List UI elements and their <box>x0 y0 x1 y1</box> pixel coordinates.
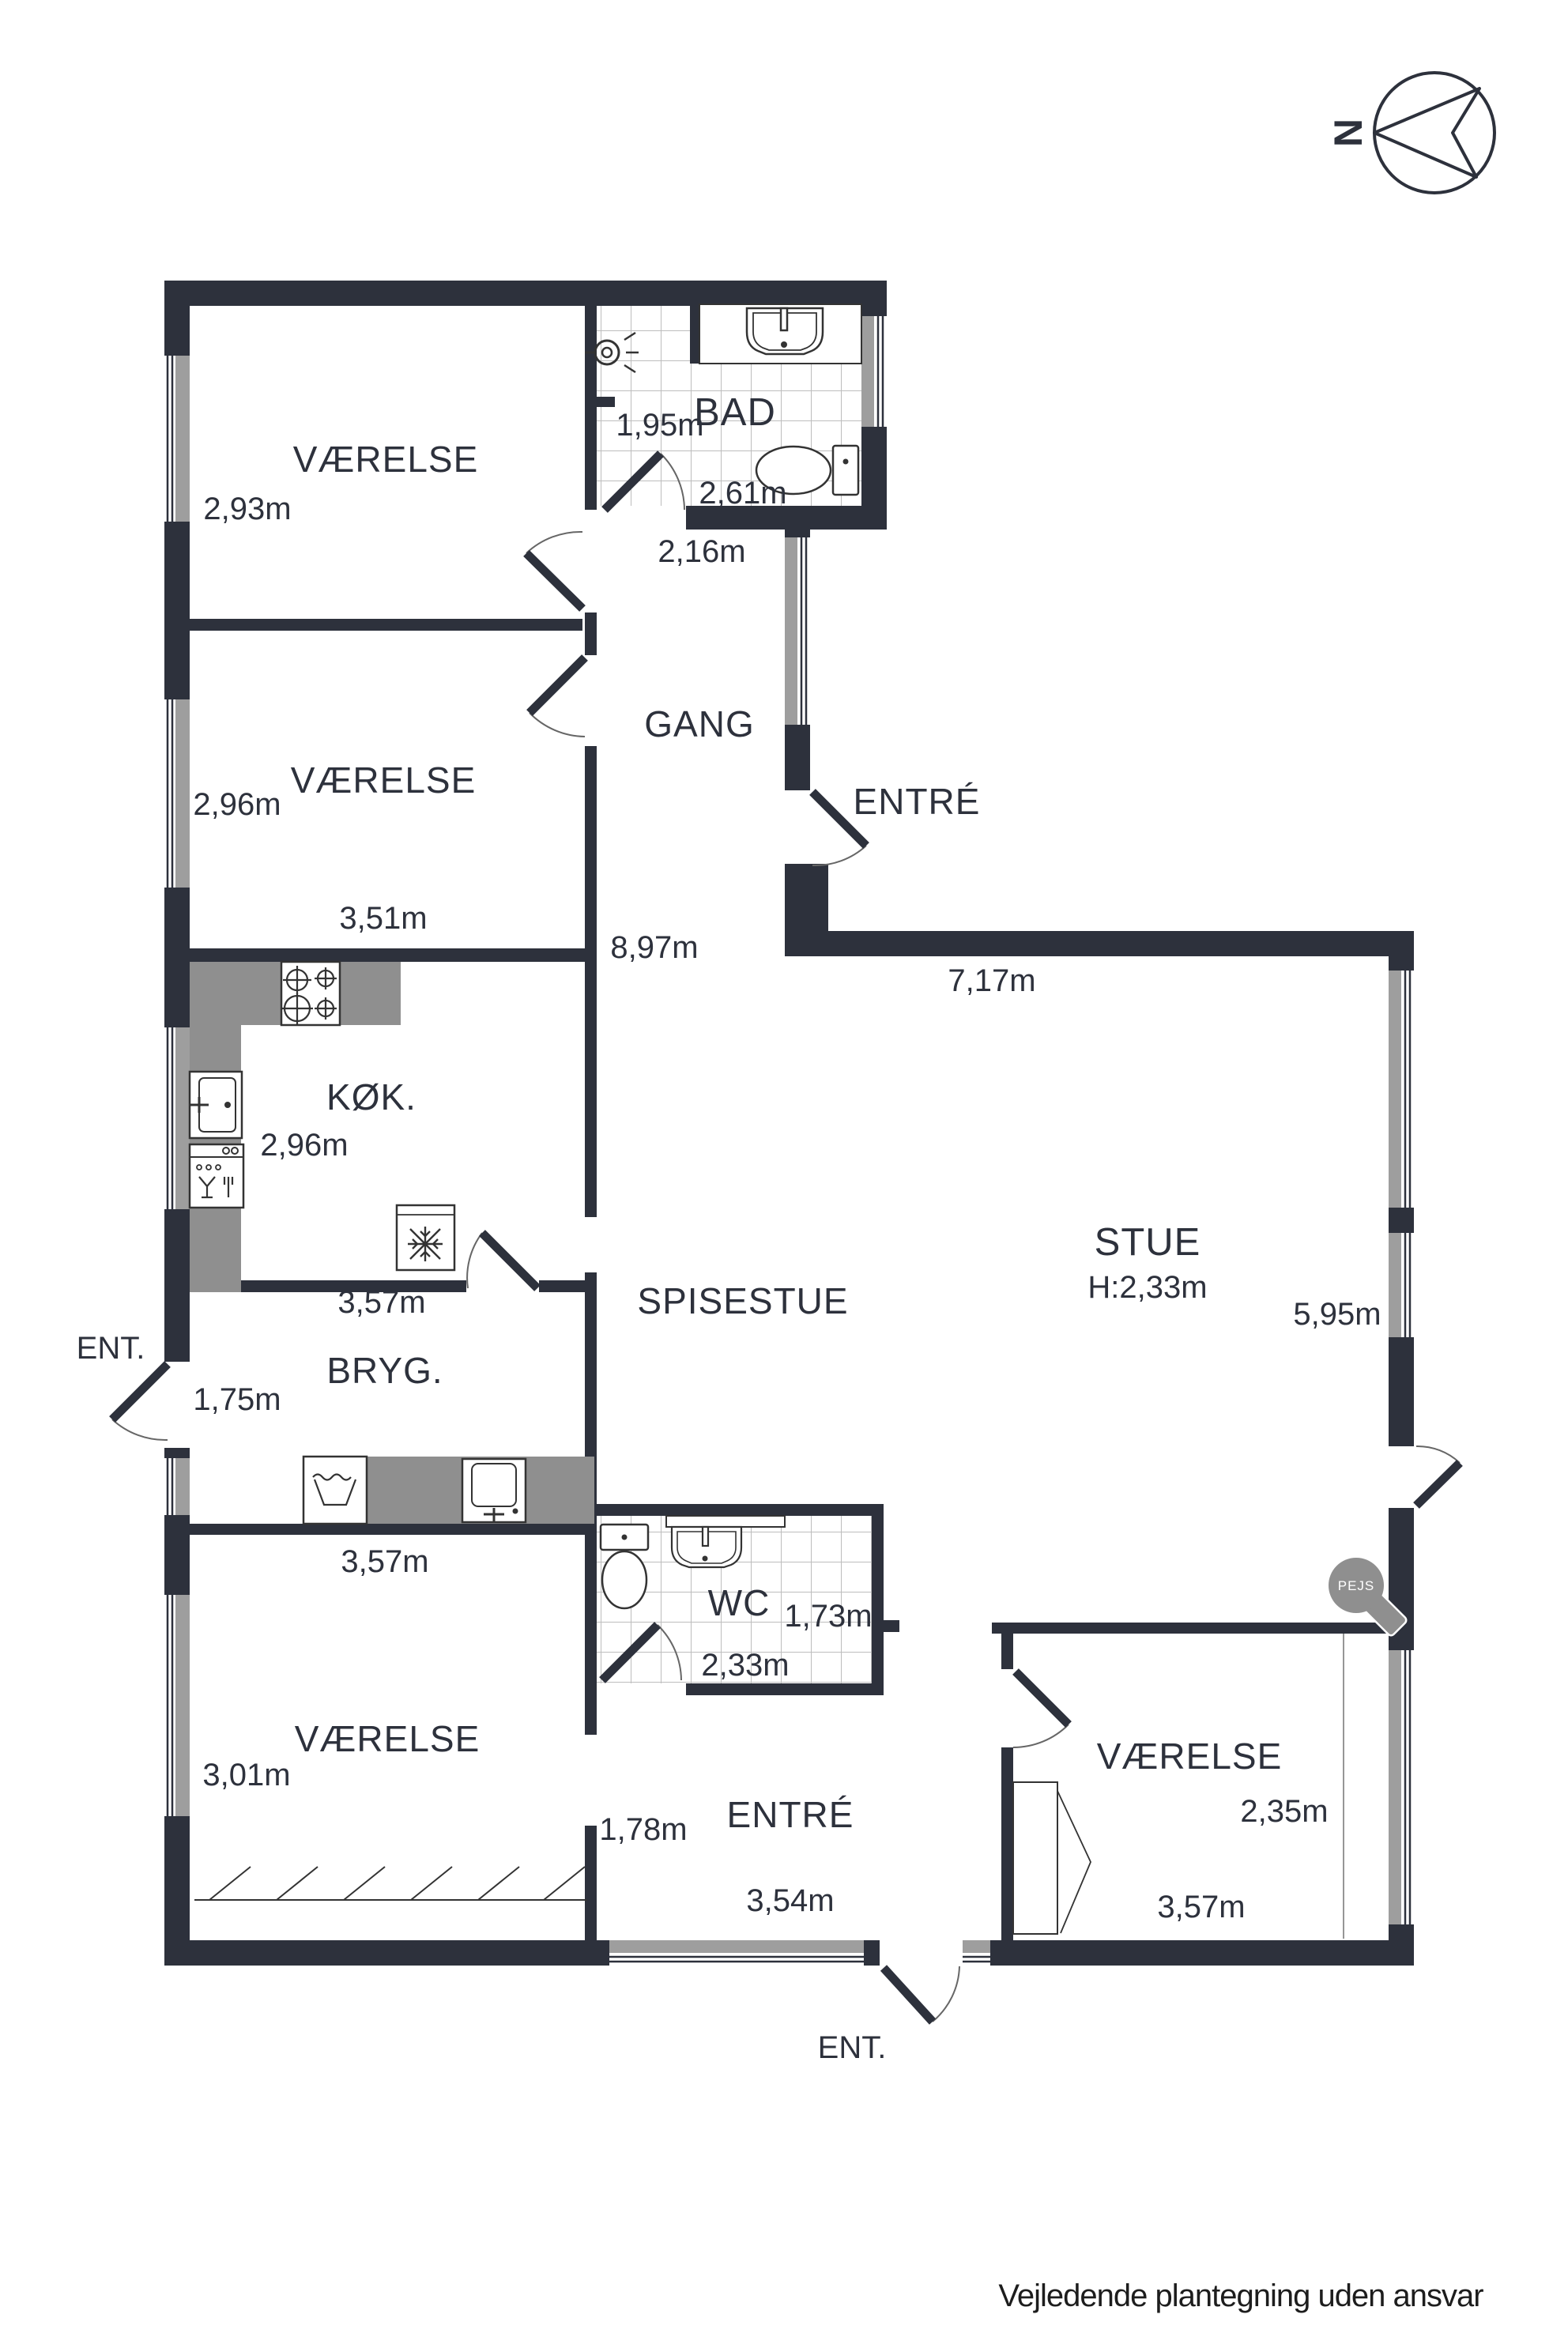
dim-vaerelse-nw-depth: 2,93m <box>203 492 291 526</box>
walls <box>164 281 1414 1966</box>
dim-entre-s-width: 3,54m <box>746 1883 834 1918</box>
dim-wc-2: 2,33m <box>701 1648 789 1683</box>
dim-stue-ceiling: H:2,33m <box>1087 1270 1207 1305</box>
dim-vaerelse-se-depth: 2,35m <box>1240 1794 1328 1829</box>
dim-vaerelse-w-depth: 2,96m <box>193 787 281 822</box>
dishwasher-icon <box>190 1144 243 1208</box>
north-label: N <box>1326 119 1370 147</box>
stove-icon <box>281 962 340 1025</box>
room-label-koek: KØK. <box>326 1076 416 1118</box>
room-label-vaerelse-se: VÆRELSE <box>1097 1736 1283 1777</box>
north-arrow-icon: N <box>1326 73 1494 193</box>
room-label-vaerelse-w: VÆRELSE <box>291 759 477 801</box>
counter-surfaces <box>190 962 594 1524</box>
room-label-bad: BAD <box>694 391 776 434</box>
room-label-spisestue: SPISESTUE <box>637 1280 848 1321</box>
floor-hatch <box>194 1867 587 1900</box>
wc-shelf <box>666 1516 785 1527</box>
wc-sink-icon <box>672 1527 741 1567</box>
dim-bad-1: 1,95m <box>616 408 703 443</box>
bryg-sink-icon <box>462 1459 526 1522</box>
room-label-bryg: BRYG. <box>326 1350 443 1391</box>
room-label-wc: WC <box>708 1582 771 1623</box>
dim-bad-2: 2,61m <box>699 476 786 511</box>
bad-sink-icon <box>747 308 823 354</box>
dim-entre-s-1: 1,78m <box>599 1812 687 1847</box>
fridge-icon <box>397 1205 454 1270</box>
counters <box>190 962 594 1524</box>
dim-bryg-width: 3,57m <box>341 1544 428 1579</box>
room-label-gang: GANG <box>644 703 754 744</box>
dim-vaerelse-w-width: 3,51m <box>339 901 427 936</box>
disclaimer-text: Vejledende plantegning uden ansvar <box>998 2278 1483 2313</box>
room-labels: VÆRELSE 2,93m BAD 1,95m 2,61m 2,16m GANG… <box>77 391 1381 2065</box>
floor-plan-canvas: PEJS N VÆRELSE 2,93m BAD 1,95m 2,61m 2,1… <box>0 0 1568 2352</box>
room-label-vaerelse-sw: VÆRELSE <box>295 1718 481 1759</box>
room-label-entre-front: ENTRÉ <box>854 781 981 822</box>
dim-wc-1: 1,73m <box>784 1599 872 1634</box>
dim-vaerelse-se-width: 3,57m <box>1157 1890 1245 1924</box>
dim-stue-depth: 5,95m <box>1293 1297 1381 1332</box>
room-label-entre-s: ENTRÉ <box>727 1794 854 1835</box>
bed-icon <box>1013 1782 1091 1934</box>
room-label-stue: STUE <box>1095 1221 1201 1264</box>
window-glass <box>175 316 1401 1953</box>
exterior-walls <box>164 281 1414 1966</box>
dim-vaerelse-sw-depth: 3,01m <box>202 1758 290 1792</box>
room-label-vaerelse-nw: VÆRELSE <box>293 439 479 480</box>
fireplace-label: PEJS <box>1338 1578 1375 1593</box>
washing-machine-icon <box>303 1457 367 1524</box>
label-ent-south: ENT. <box>818 2030 887 2065</box>
wc-toilet-icon <box>601 1525 648 1608</box>
dim-bryg-1: 1,75m <box>193 1382 281 1417</box>
kitchen-sink-icon <box>190 1072 242 1138</box>
label-ent-west: ENT. <box>77 1331 145 1366</box>
dim-koek-depth: 2,96m <box>260 1128 348 1163</box>
dim-hall-depth: 8,97m <box>610 930 698 965</box>
dim-koek-width: 3,57m <box>337 1285 425 1320</box>
dim-bad-3: 2,16m <box>658 534 745 569</box>
dim-stue-width: 7,17m <box>948 963 1035 998</box>
